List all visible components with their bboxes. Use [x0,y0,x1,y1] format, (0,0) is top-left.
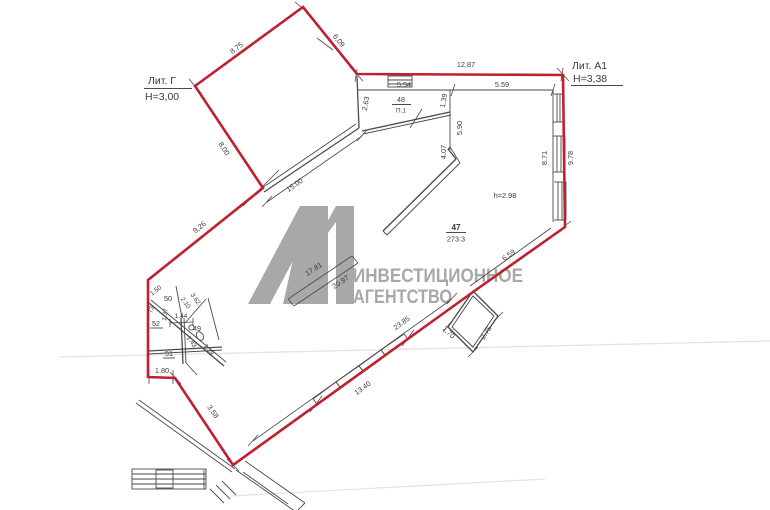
dim-1-39: 1.39 [438,93,449,109]
lit-a1-name: Лит. А1 [572,60,607,72]
dim-12-87: 12,87 [457,60,475,69]
room-49-number: 49 [193,324,201,333]
dim-4-07: 4.07 [439,145,448,159]
room-47-number: 47 [451,223,461,232]
dim-8-00: 8,00 [216,140,231,157]
dim-5-90: 5.90 [455,121,464,135]
lit-g-height: Н=3,00 [145,91,179,103]
dim-23-85: 23.85 [391,314,411,332]
dim-2-63: 2.63 [360,96,371,112]
dim-1-44: 1.44 [175,313,188,320]
room-51-number: 51 [165,349,173,358]
dim-2-75: 2.75 [478,324,494,341]
dim-1-80: 1.80 [155,366,169,375]
room-48-name: П.1 [396,108,406,115]
watermark-logo [248,206,354,304]
floor-plan-page: ИНВЕСТИЦИОННОЕ АГЕНТСТВО [0,0,770,510]
room-47-ceiling-height: h=2.98 [494,191,517,200]
dim-6-59: 6.59 [500,247,517,263]
dim-1-70: 1,70 [441,324,457,340]
dim-1-18: 1.18 [202,343,215,358]
dim-15-00: 15.00 [285,176,305,194]
dim-8-71: 8.71 [540,151,549,165]
dim-13-40: 13.40 [352,379,372,397]
lit-g-name: Лит. Г [148,75,176,87]
dim-3-58: 3,58 [205,403,221,420]
building-labels: Лит. Г Н=3,00 Лит. А1 Н=3,38 [144,60,623,103]
watermark-text-line1: ИНВЕСТИЦИОННОЕ [353,266,523,287]
dim-5-59: 5.59 [495,80,509,89]
dim-9-78: 9.78 [566,151,575,165]
room-47-area: 273.3 [447,235,465,244]
dim-2-10: 2.10 [179,296,192,311]
scan-artifact-lines [60,341,770,496]
watermark-text-line2: АГЕНТСТВО [353,287,452,308]
floor-plan-drawing: ИНВЕСТИЦИОННОЕ АГЕНТСТВО [0,0,770,510]
dim-73: 73 [147,305,155,314]
room-52-number: 52 [152,319,160,328]
dim-8-75: 8.75 [228,40,245,56]
room-48-number: 48 [397,95,405,104]
lit-a1-height: Н=3,38 [573,73,607,85]
dim-1-50: 1.50 [149,284,163,297]
dim-5-54: 5.54 [397,80,411,89]
room-50-number: 50 [164,294,172,303]
